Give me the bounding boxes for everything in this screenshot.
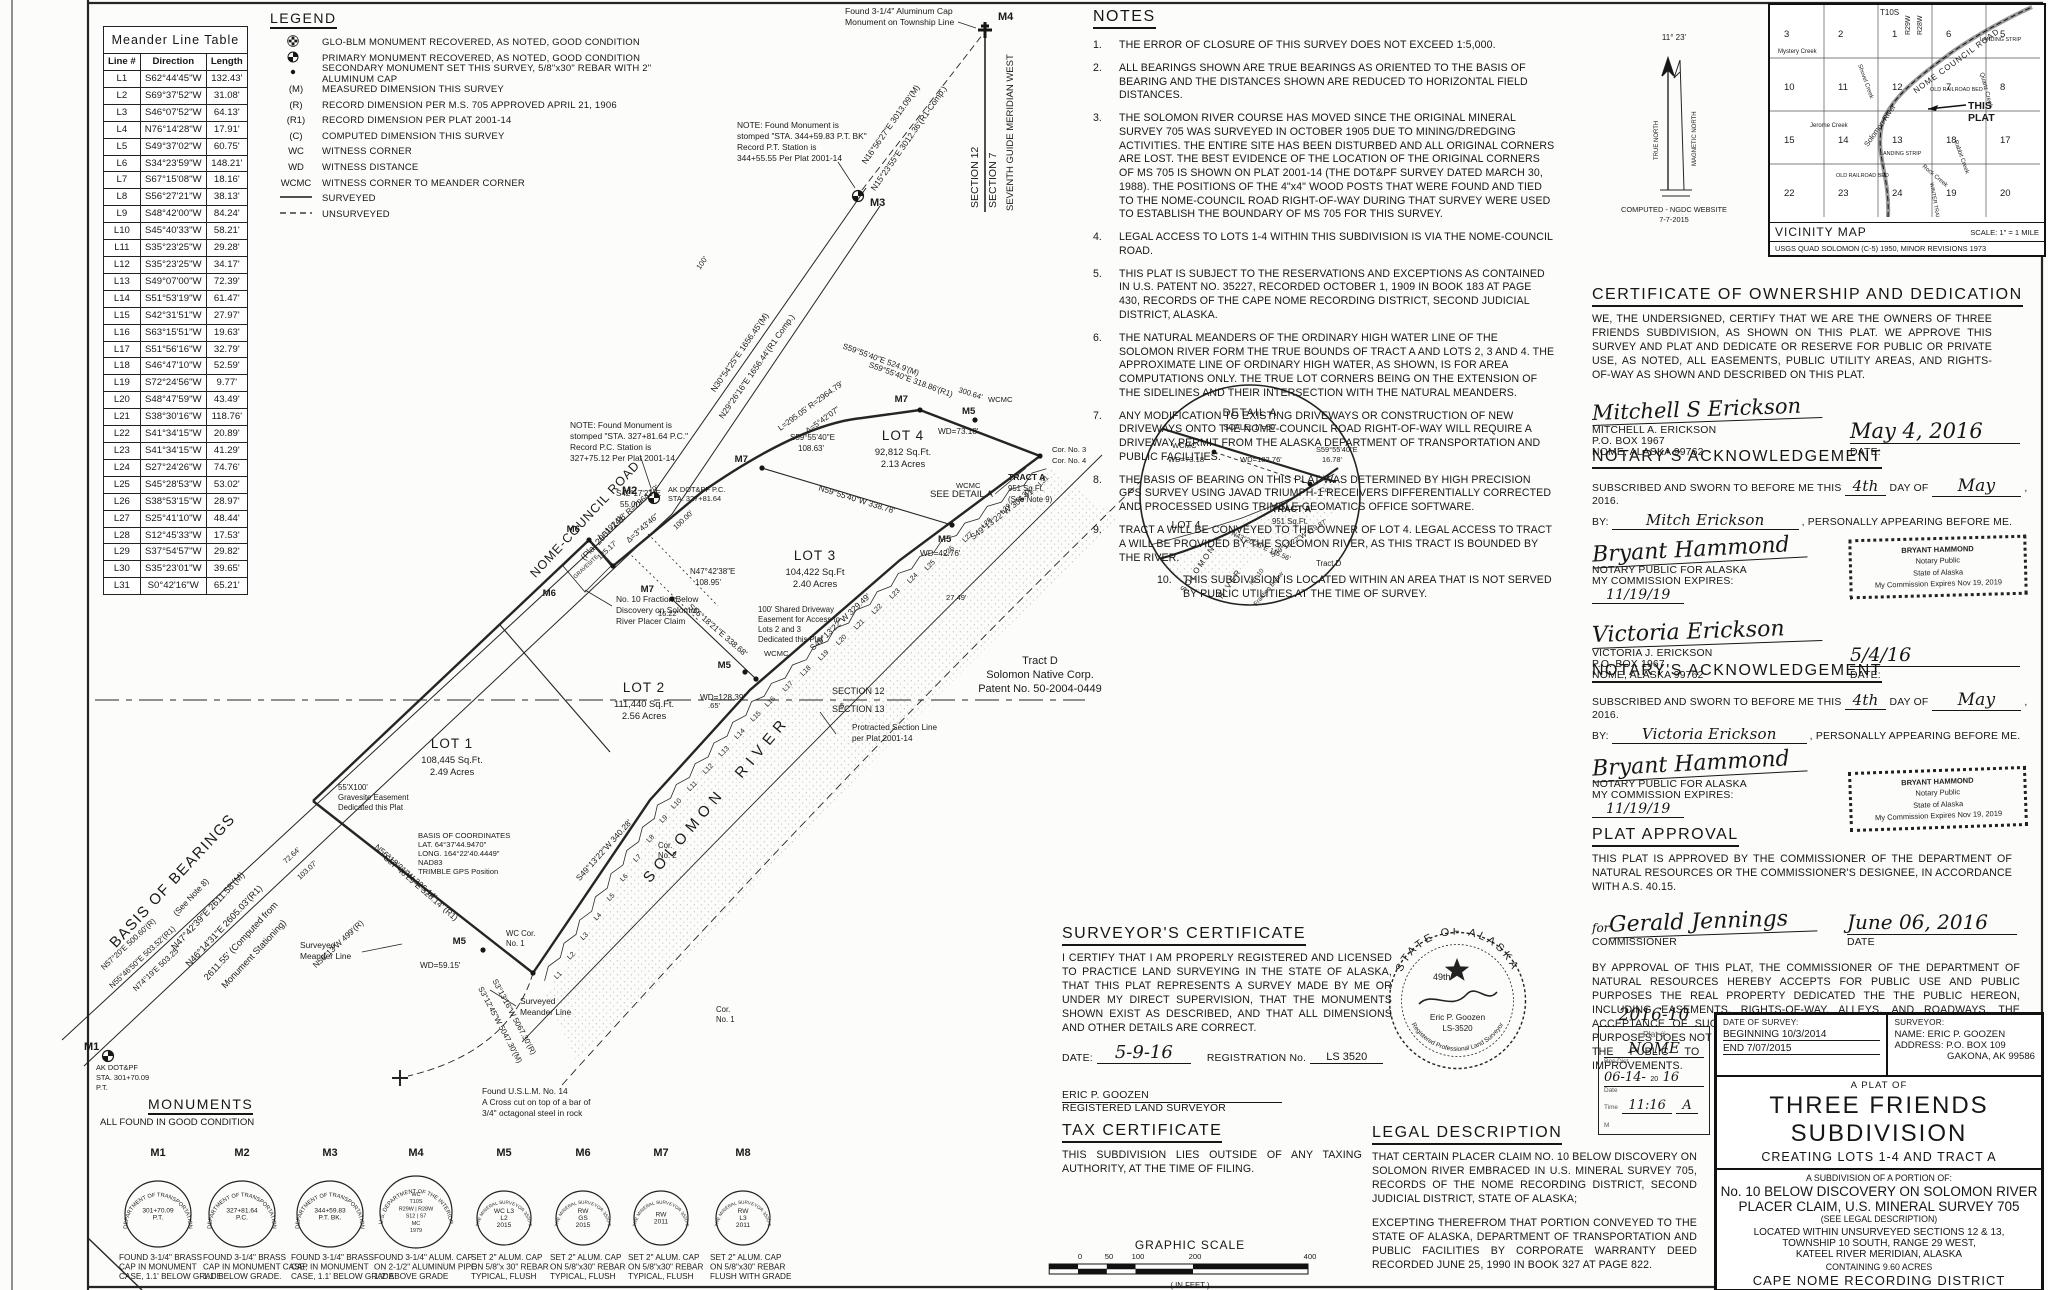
solid-line-icon bbox=[270, 191, 322, 206]
svg-text:Dedicated this Plat: Dedicated this Plat bbox=[338, 803, 404, 812]
monument-cap-text: L2 bbox=[500, 1215, 508, 1222]
lot1-label: LOT 1 bbox=[431, 736, 473, 751]
recording-stamp: 2016-10 Plat # NOME Rec Dist 06-14- 20 1… bbox=[1598, 1005, 1710, 1135]
legend-text: MEASURED DIMENSION THIS SURVEY bbox=[322, 84, 504, 95]
meander-table-row: L9S48°42'00"W84.24' bbox=[104, 206, 248, 223]
surveyor-seal: STATE OF ALASKA Registered Professional … bbox=[1385, 928, 1530, 1073]
expires-value: 11/19/19 bbox=[1592, 587, 1684, 604]
monument-caption: TYPICAL, FLUSH bbox=[550, 1272, 616, 1281]
note-number: 8. bbox=[1093, 474, 1119, 515]
tb-title: THREE FRIENDS SUBDIVISION bbox=[1717, 1092, 2041, 1148]
svg-text:R28W: R28W bbox=[1917, 15, 1924, 35]
surveyor-cert-title: SURVEYOR'S CERTIFICATE bbox=[1062, 925, 1306, 946]
svg-text:104,422 Sq.Ft: 104,422 Sq.Ft bbox=[786, 566, 845, 577]
meander-table-row: L2S69°37'52"W31.08' bbox=[104, 87, 248, 104]
svg-text:LONG. 164°22'40.4449": LONG. 164°22'40.4449" bbox=[418, 849, 500, 858]
svg-text:M5: M5 bbox=[718, 660, 732, 671]
m3-label: M3 bbox=[870, 197, 885, 209]
monument-cap-text: T10S bbox=[410, 1199, 423, 1205]
meander-table-row: L26S38°53'15"W28.97' bbox=[104, 493, 248, 510]
monument-cap-text: 1979 bbox=[410, 1228, 422, 1234]
monument-caption: ON 5/8"x30" REBAR bbox=[550, 1263, 626, 1272]
svg-text:11° 23': 11° 23' bbox=[1662, 33, 1687, 42]
legend-key: WC bbox=[270, 146, 322, 157]
legend: LEGEND GLO-BLM MONUMENT RECOVERED, AS NO… bbox=[270, 10, 670, 222]
monument-caption: 1.1' BELOW GRADE. bbox=[203, 1272, 281, 1281]
svg-text:WINTER TRAIL: WINTER TRAIL bbox=[1928, 182, 1940, 217]
legend-item: (C)COMPUTED DIMENSION THIS SURVEY bbox=[270, 129, 670, 145]
svg-text:27.49': 27.49' bbox=[946, 593, 967, 602]
tb-plat-of: A PLAT OF bbox=[1717, 1080, 2041, 1091]
tract-d-label: Tract D bbox=[1022, 655, 1058, 667]
meander-table-row: L19S72°24'56"W9.77' bbox=[104, 375, 248, 392]
monument-cap-text: 301+70.09 bbox=[142, 1207, 174, 1214]
legend-key: (R1) bbox=[270, 115, 322, 126]
monument-id: M2 bbox=[234, 1147, 249, 1159]
owner1-date: May 4, 2016 bbox=[1850, 419, 2020, 444]
meander-table-row: L7S67°15'08"W18.16' bbox=[104, 172, 248, 189]
notary1-signature: Bryant Hammond bbox=[1591, 531, 1807, 568]
svg-text:STA. 301+70.09: STA. 301+70.09 bbox=[96, 1073, 149, 1082]
note-text: THE BASIS OF BEARING ON THIS PLAT WAS DE… bbox=[1119, 474, 1555, 515]
sworn-month-2: May bbox=[1932, 690, 2022, 711]
graphic-scale-title: GRAPHIC SCALE bbox=[1040, 1238, 1340, 1252]
note-text: THE ERROR OF CLOSURE OF THIS SURVEY DOES… bbox=[1119, 39, 1555, 53]
svg-text:Eric P. Goozen: Eric P. Goozen bbox=[1430, 1012, 1486, 1022]
note-number: 5. bbox=[1093, 268, 1119, 323]
legend-text: UNSURVEYED bbox=[322, 209, 390, 220]
svg-text:SECTION 12: SECTION 12 bbox=[832, 686, 885, 696]
owner1-name: MITCHELL A. ERICKSON bbox=[1592, 425, 1822, 436]
vicinity-section-number: 8 bbox=[2000, 82, 2005, 93]
notary1-title: NOTARY'S ACKNOWLEDGEMENT bbox=[1592, 448, 1882, 469]
note-number: 7. bbox=[1093, 410, 1119, 465]
monument-caption: FOUND 3-1/4" BRASS bbox=[291, 1253, 375, 1262]
svg-text:111,440 Sq.Ft.: 111,440 Sq.Ft. bbox=[614, 698, 674, 709]
monument-cap-text: P.T. BK. bbox=[319, 1215, 342, 1222]
appearing-text-2: , PERSONALLY APPEARING BEFORE ME. bbox=[1810, 731, 2021, 742]
scale-bar bbox=[1040, 1263, 1340, 1275]
note-item: 8.THE BASIS OF BEARING ON THIS PLAT WAS … bbox=[1093, 474, 1555, 515]
svg-text:No. 1: No. 1 bbox=[716, 1015, 735, 1024]
svg-text:COMPUTED - NGDC WEBSITE: COMPUTED - NGDC WEBSITE bbox=[1621, 205, 1727, 214]
tb-begin: BEGINNING 10/3/2014 bbox=[1723, 1029, 1880, 1041]
meander-table-row: L11S35°23'25"W29.28' bbox=[104, 240, 248, 257]
notary2-stamp: BRYANT HAMMONDNotary Public State of Ala… bbox=[1848, 766, 2028, 832]
approval-date: June 06, 2016 bbox=[1847, 910, 2017, 935]
tb-district: CAPE NOME RECORDING DISTRICT bbox=[1717, 1273, 2041, 1288]
monument-caption: CAP IN MONUMENT bbox=[291, 1263, 369, 1272]
scale-tick-label: 400 bbox=[1300, 1252, 1320, 1261]
svg-text:OLD RAILROAD BED: OLD RAILROAD BED bbox=[1930, 87, 1983, 93]
see-detail-a: SEE DETAIL A bbox=[930, 489, 994, 500]
monument-caption: CAP IN MONUMENT bbox=[119, 1263, 197, 1272]
scale-unit: ( IN FEET ) bbox=[1040, 1281, 1340, 1290]
meander-table-row: L12S35°23'25"W34.17' bbox=[104, 257, 248, 274]
monument-id: M5 bbox=[496, 1147, 511, 1159]
plat-label: Plat # bbox=[1604, 1029, 1704, 1039]
note-number: 3. bbox=[1093, 112, 1119, 222]
owner2-name: VICTORIA J. ERICKSON bbox=[1592, 648, 1822, 659]
scale-tick-label: 200 bbox=[1185, 1252, 1205, 1261]
legend-key: (C) bbox=[270, 131, 322, 142]
vicinity-section-number: 13 bbox=[1892, 135, 1903, 146]
svg-text:Protracted Section Line: Protracted Section Line bbox=[852, 723, 938, 732]
vicinity-section-number: 24 bbox=[1892, 188, 1903, 199]
meander-table-row: L29S37°54'57"W29.82' bbox=[104, 544, 248, 561]
svg-text:M6: M6 bbox=[543, 588, 556, 599]
tb-surveyor-name: NAME: ERIC P. GOOZEN bbox=[1894, 1029, 2035, 1040]
meander-table-row: L5S49°37'02"W60.75' bbox=[104, 138, 248, 155]
tb-claim1: No. 10 BELOW DISCOVERY ON SOLOMON RIVER bbox=[1717, 1184, 2041, 1199]
by-name-2: Victoria Erickson bbox=[1612, 725, 1807, 744]
vicinity-title: VICINITY MAP bbox=[1775, 225, 1867, 239]
legend-key: WCMC bbox=[270, 178, 322, 189]
svg-text:R29W: R29W bbox=[1905, 15, 1912, 35]
svg-text:TRIMBLE GPS Position: TRIMBLE GPS Position bbox=[418, 867, 498, 876]
svg-text:Solomon Native Corp.: Solomon Native Corp. bbox=[986, 669, 1094, 681]
scale-tick-label: 100 bbox=[1128, 1252, 1148, 1261]
expires-label-2: MY COMMISSION EXPIRES: bbox=[1592, 790, 1734, 801]
rec-district-label: Rec Dist bbox=[1604, 1058, 1704, 1065]
registration-label: REGISTRATION No. bbox=[1207, 1053, 1306, 1064]
meander-table-row: L30S35°23'01"W39.65' bbox=[104, 561, 248, 578]
svg-text:LANDING STRIP: LANDING STRIP bbox=[1880, 151, 1922, 157]
monument-m6: M6THE MINERAL SURVEYOR 3520-SRWGS2015SET… bbox=[550, 1147, 626, 1281]
found-m4-note: Found 3-1/4" Aluminum Cap bbox=[845, 6, 953, 16]
secondary-monument-icon bbox=[270, 66, 322, 81]
svg-text:Monument on Township Line: Monument on Township Line bbox=[845, 17, 954, 27]
legend-text: RECORD DIMENSION PER M.S. 705 APPROVED A… bbox=[322, 100, 617, 111]
note-item: 9.TRACT A WILL BE CONVEYED TO THE OWNER … bbox=[1093, 524, 1555, 565]
ownership-body: WE, THE UNDERSIGNED, CERTIFY THAT WE ARE… bbox=[1592, 313, 1992, 383]
notes: NOTES 1.THE ERROR OF CLOSURE OF THIS SUR… bbox=[1093, 8, 1555, 611]
svg-text:SECTION 7: SECTION 7 bbox=[987, 152, 999, 208]
legend-key: (M) bbox=[270, 84, 322, 95]
glo-blm-monument-icon bbox=[270, 35, 322, 50]
note-text: THE NATURAL MEANDERS OF THE ORDINARY HIG… bbox=[1119, 332, 1555, 401]
legend-item: GLO-BLM MONUMENT RECOVERED, AS NOTED, GO… bbox=[270, 35, 670, 51]
svg-text:Gravesite Easement: Gravesite Easement bbox=[338, 793, 409, 802]
owner1-signature: Mitchell S Erickson bbox=[1592, 393, 1823, 426]
meander-table-row: L16S63°15'51"W19.63' bbox=[104, 324, 248, 341]
svg-text:M7: M7 bbox=[735, 454, 748, 465]
svg-text:WD=73.18': WD=73.18' bbox=[938, 427, 979, 436]
svg-text:Cor. No. 3: Cor. No. 3 bbox=[1052, 445, 1086, 454]
m4-label: M4 bbox=[998, 11, 1014, 23]
monument-cap-text: P.T. bbox=[153, 1215, 164, 1222]
note-text: TRACT A WILL BE CONVEYED TO THE OWNER OF… bbox=[1119, 524, 1555, 565]
vicinity-section-number: 22 bbox=[1784, 188, 1795, 199]
svg-text:SECTION 12: SECTION 12 bbox=[969, 147, 981, 208]
svg-text:M5: M5 bbox=[453, 936, 467, 947]
note-text: THIS PLAT IS SUBJECT TO THE RESERVATIONS… bbox=[1119, 268, 1555, 323]
rec-ampm: A bbox=[1676, 1098, 1697, 1114]
sworn-month: May bbox=[1932, 476, 2022, 497]
appearing-text: , PERSONALLY APPEARING BEFORE ME. bbox=[1802, 517, 2013, 528]
svg-text:2.40 Acres: 2.40 Acres bbox=[793, 578, 838, 589]
note-text: ALL BEARINGS SHOWN ARE TRUE BEARINGS AS … bbox=[1119, 62, 1555, 103]
approval-date-label: DATE bbox=[1847, 937, 2017, 948]
svg-text:SEVENTH GUIDE MERIDIAN WEST: SEVENTH GUIDE MERIDIAN WEST bbox=[1005, 54, 1016, 211]
legend-item: SURVEYED bbox=[270, 191, 670, 207]
svg-text:108,445 Sq.Ft.: 108,445 Sq.Ft. bbox=[421, 754, 483, 765]
tb-end: END 7/07/2015 bbox=[1723, 1043, 1880, 1055]
legend-key: (R) bbox=[270, 100, 322, 111]
note-text: ANY MODIFICATION TO EXISTING DRIVEWAYS O… bbox=[1119, 410, 1555, 465]
meander-table-row: L10S45°40'33"W58.21' bbox=[104, 223, 248, 240]
surveyors-certificate: SURVEYOR'S CERTIFICATE I CERTIFY THAT I … bbox=[1062, 925, 1407, 1114]
plat-approval-body1: THIS PLAT IS APPROVED BY THE COMMISSIONE… bbox=[1592, 853, 2012, 895]
svg-text:T10S: T10S bbox=[1880, 8, 1899, 17]
meander-line-table: Meander Line Table Line #DirectionLength… bbox=[103, 26, 248, 595]
monument-m4: M4U.S. DEPARTMENT OF THE INTERIORWCT10SR… bbox=[374, 1147, 477, 1281]
by-label: BY: bbox=[1592, 517, 1609, 528]
svg-text:344+55.55 Per Plat 2001-14: 344+55.55 Per Plat 2001-14 bbox=[737, 153, 842, 163]
legal-description: LEGAL DESCRIPTION THAT CERTAIN PLACER CL… bbox=[1372, 1124, 1702, 1273]
monument-caption: ON 5/8"x30" REBAR bbox=[710, 1263, 786, 1272]
note-item: 3.THE SOLOMON RIVER COURSE HAS MOVED SIN… bbox=[1093, 112, 1555, 222]
svg-text:103.07': 103.07' bbox=[295, 858, 319, 881]
vicinity-section-number: 12 bbox=[1892, 82, 1903, 93]
monument-cap-text: L3 bbox=[739, 1215, 747, 1222]
for-note: for bbox=[1592, 921, 1609, 935]
monument-caption: ON 5/8"x 30" REBAR bbox=[471, 1263, 549, 1272]
graphic-scale: GRAPHIC SCALE 050100200400 ( IN FEET ) 1… bbox=[1040, 1238, 1340, 1290]
tb-containing: CONTAINING 9.60 ACRES bbox=[1717, 1262, 2041, 1272]
legal-title: LEGAL DESCRIPTION bbox=[1372, 1124, 1562, 1145]
monument-cap-text: P.C. bbox=[236, 1215, 248, 1222]
tb-subtitle: CREATING LOTS 1-4 AND TRACT A bbox=[1717, 1150, 2041, 1164]
vicinity-section-number: 19 bbox=[1946, 188, 1957, 199]
legend-text: SECONDARY MONUMENT SET THIS SURVEY, 5/8"… bbox=[322, 63, 670, 85]
owner1-addr1: P.O. BOX 1967 bbox=[1592, 436, 1822, 447]
monument-id: M3 bbox=[322, 1147, 337, 1159]
monument-caption: ON 2-1/2" ALUMINUM PIPE bbox=[374, 1263, 477, 1272]
monument-cap-text: RW bbox=[738, 1208, 750, 1215]
note-item: 4.LEGAL ACCESS TO LOTS 1-4 WITHIN THIS S… bbox=[1093, 231, 1555, 259]
rec-date-label: Date bbox=[1604, 1087, 1704, 1094]
expires-label: MY COMMISSION EXPIRES: bbox=[1592, 576, 1734, 587]
svg-text:WC Cor.: WC Cor. bbox=[506, 929, 535, 938]
svg-text:AK DOT&PF: AK DOT&PF bbox=[96, 1063, 138, 1072]
svg-text:300.64': 300.64' bbox=[957, 385, 984, 401]
svg-text:M7: M7 bbox=[641, 584, 654, 595]
svg-text:100': 100' bbox=[694, 254, 710, 271]
legend-text: SURVEYED bbox=[322, 193, 376, 204]
svg-text:WD=128.39': WD=128.39' bbox=[700, 693, 745, 702]
svg-text:BASIS OF COORDINATES: BASIS OF COORDINATES bbox=[418, 831, 510, 840]
svg-text:M7: M7 bbox=[895, 394, 908, 405]
svg-text:WCMC: WCMC bbox=[764, 649, 789, 658]
tb-claim2: PLACER CLAIM, U.S. MINERAL SURVEY 705 bbox=[1717, 1199, 2041, 1214]
monument-cap-text: S12 | S7 bbox=[406, 1214, 427, 1220]
notary2-signature: Bryant Hammond bbox=[1591, 745, 1807, 782]
svg-text:stomped "STA. 327+81.64 P.C.": stomped "STA. 327+81.64 P.C." bbox=[570, 431, 688, 441]
svg-text:NAD83: NAD83 bbox=[418, 858, 442, 867]
svg-text:per Plat 2001-14: per Plat 2001-14 bbox=[852, 734, 913, 743]
note-item: 1.THE ERROR OF CLOSURE OF THIS SURVEY DO… bbox=[1093, 39, 1555, 53]
meander-table-row: L20S48°47'59"W43.49' bbox=[104, 392, 248, 409]
surveyor-cert-body: I CERTIFY THAT I AM PROPERLY REGISTERED … bbox=[1062, 952, 1392, 1036]
monument-cap-text: 2015 bbox=[497, 1222, 512, 1229]
monument-id: M1 bbox=[150, 1147, 165, 1159]
monument-caption: SET 2" ALUM. CAP bbox=[628, 1253, 700, 1262]
legend-item: WCWITNESS CORNER bbox=[270, 144, 670, 160]
monument-cap-text: 2011 bbox=[654, 1219, 669, 1226]
tb-located2: TOWNSHIP 10 SOUTH, RANGE 29 WEST, bbox=[1717, 1238, 2041, 1249]
meander-table-row: L21S38°30'16"W118.76' bbox=[104, 409, 248, 426]
sworn-text-2: SUBSCRIBED AND SWORN TO BEFORE ME THIS bbox=[1592, 697, 1842, 708]
meander-table-row: L31S0°42'16"W65.21' bbox=[104, 578, 248, 595]
sworn-dayof-2: DAY OF bbox=[1890, 697, 1929, 708]
svg-text:Record P.T. Station is: Record P.T. Station is bbox=[737, 142, 816, 152]
tb-located1: LOCATED WITHIN UNSURVEYED SECTIONS 12 & … bbox=[1717, 1227, 2041, 1238]
notary2-title: NOTARY'S ACKNOWLEDGEMENT bbox=[1592, 662, 1882, 683]
legend-text: WITNESS CORNER bbox=[322, 146, 412, 157]
svg-text:Surveyed: Surveyed bbox=[520, 996, 556, 1006]
note-number: 4. bbox=[1093, 231, 1119, 259]
note-text: THE SOLOMON RIVER COURSE HAS MOVED SINCE… bbox=[1119, 112, 1555, 222]
svg-text:M6: M6 bbox=[567, 524, 580, 535]
monument-cap-text: 2015 bbox=[576, 1222, 591, 1229]
rec-date-year: 16 bbox=[1663, 1070, 1680, 1085]
svg-text:108.95': 108.95' bbox=[695, 578, 721, 587]
note-number: 2. bbox=[1093, 62, 1119, 103]
legal-body2: EXCEPTING THEREFROM THAT PORTION CONVEYE… bbox=[1372, 1217, 1697, 1273]
meander-col-header: Length bbox=[206, 54, 247, 71]
monument-id: M6 bbox=[575, 1147, 590, 1159]
svg-text:2.49 Acres: 2.49 Acres bbox=[430, 766, 475, 777]
legend-item: UNSURVEYED bbox=[270, 207, 670, 223]
svg-text:49th: 49th bbox=[1433, 972, 1451, 982]
svg-text:Record P.C. Station is: Record P.C. Station is bbox=[570, 442, 651, 452]
svg-text:2.13 Acres: 2.13 Acres bbox=[881, 458, 926, 469]
legend-text: RECORD DIMENSION PER PLAT 2001-14 bbox=[322, 115, 511, 126]
svg-text:Patent No. 50-2004-0449: Patent No. 50-2004-0449 bbox=[978, 683, 1102, 695]
sworn-day: 4th bbox=[1845, 477, 1887, 496]
svg-text:Rabbit Creek: Rabbit Creek bbox=[1952, 140, 1970, 176]
monument-cap-text: WC L3 bbox=[494, 1208, 514, 1215]
svg-text:LANDING STRIP: LANDING STRIP bbox=[1980, 37, 2022, 43]
meander-col-header: Direction bbox=[140, 54, 206, 71]
svg-text:WCMC: WCMC bbox=[956, 481, 981, 490]
lot3-label: LOT 3 bbox=[794, 548, 836, 563]
monument-m8: M8THE MINERAL SURVEYOR 3520-SRWL32011SET… bbox=[710, 1147, 792, 1281]
svg-text:Meander Line: Meander Line bbox=[520, 1007, 572, 1017]
monument-caption: FLUSH WITH GRADE bbox=[710, 1272, 792, 1281]
tb-surveyor-label: SURVEYOR: bbox=[1894, 1018, 2035, 1027]
note-item: 10.THIS SUBDIVISION IS LOCATED WITHIN AN… bbox=[1093, 574, 1555, 602]
ownership-title: CERTIFICATE OF OWNERSHIP AND DEDICATION bbox=[1592, 286, 2023, 307]
svg-text:N59°55'40"W 338.78': N59°55'40"W 338.78' bbox=[817, 483, 896, 516]
note-item: 6.THE NATURAL MEANDERS OF THE ORDINARY H… bbox=[1093, 332, 1555, 401]
svg-text:2.56 Acres: 2.56 Acres bbox=[622, 710, 667, 721]
legend-item: WDWITNESS DISTANCE bbox=[270, 160, 670, 176]
monuments-canvas: M1DEPARTMENT OF TRANSPORTATION301+70.09P… bbox=[100, 1128, 800, 1288]
vicinity-section-number: 1 bbox=[1892, 29, 1897, 40]
meander-table-row: L4N76°14'28"W17.91' bbox=[104, 121, 248, 138]
svg-text:P.T.: P.T. bbox=[96, 1083, 108, 1092]
legend-item: (R1)RECORD DIMENSION PER PLAT 2001-14 bbox=[270, 113, 670, 129]
meander-table-row: L28S12°45'33"W17.53' bbox=[104, 527, 248, 544]
vicinity-scale: SCALE: 1" = 1 MILE bbox=[1970, 228, 2039, 237]
note-number: 10. bbox=[1157, 574, 1183, 602]
meander-table-row: L27S25°41'10"W48.44' bbox=[104, 510, 248, 527]
legend-text: WITNESS DISTANCE bbox=[322, 162, 418, 173]
monument-caption: FOUND 3-1/4" BRASS bbox=[119, 1253, 203, 1262]
meander-col-header: Line # bbox=[104, 54, 141, 71]
svg-text:No. 2: No. 2 bbox=[658, 851, 677, 860]
vicinity-section-number: 2 bbox=[1838, 29, 1843, 40]
svg-text:100' Shared Driveway: 100' Shared Driveway bbox=[758, 605, 834, 614]
svg-text:Found U.S.L.M. No. 14: Found U.S.L.M. No. 14 bbox=[482, 1086, 568, 1096]
vicinity-source: USGS QUAD SOLOMON (C-5) 1950, MINOR REVI… bbox=[1770, 241, 2044, 255]
monument-caption: SET 2" ALUM. CAP bbox=[550, 1253, 622, 1262]
legend-title: LEGEND bbox=[270, 10, 337, 29]
meander-table-row: L23S41°34'15"W41.29' bbox=[104, 442, 248, 459]
lot4-label: LOT 4 bbox=[882, 428, 924, 443]
note-item: 7.ANY MODIFICATION TO EXISTING DRIVEWAYS… bbox=[1093, 410, 1555, 465]
svg-text:MAGNETIC NORTH: MAGNETIC NORTH bbox=[1692, 111, 1698, 166]
tax-cert-body: THIS SUBDIVISION LIES OUTSIDE OF ANY TAX… bbox=[1062, 1149, 1362, 1177]
expires-value-2: 11/19/19 bbox=[1592, 801, 1684, 818]
primary-monument-icon bbox=[270, 51, 322, 66]
sworn-text: SUBSCRIBED AND SWORN TO BEFORE ME THIS bbox=[1592, 483, 1842, 494]
vicinity-section-number: 11 bbox=[1838, 82, 1848, 93]
surveyor-date: 5-9-16 bbox=[1097, 1042, 1191, 1064]
tb-located3: KATEEL RIVER MERIDIAN, ALASKA bbox=[1717, 1249, 2041, 1260]
m1-label: M1 bbox=[84, 1041, 99, 1053]
plat-approval-title: PLAT APPROVAL bbox=[1592, 826, 1739, 847]
scale-tick-label: 50 bbox=[1099, 1252, 1119, 1261]
svg-text:55'X100': 55'X100' bbox=[338, 783, 368, 792]
sworn-dayof: DAY OF bbox=[1890, 483, 1929, 494]
monument-m7: M7THE MINERAL SURVEYOR 3520-SRW2011SET 2… bbox=[628, 1147, 704, 1281]
svg-text:Mystery Creek: Mystery Creek bbox=[1778, 49, 1818, 55]
tb-date-survey-label: DATE OF SURVEY: bbox=[1723, 1018, 1880, 1027]
notary1-stamp: BRYANT HAMMONDNotary Public State of Ala… bbox=[1848, 535, 2028, 600]
svg-text:WD=59.15': WD=59.15' bbox=[420, 961, 461, 970]
svg-text:Meander Line: Meander Line bbox=[300, 951, 352, 961]
owner2-signature: Victoria Erickson bbox=[1592, 615, 1823, 649]
monument-id: M4 bbox=[408, 1147, 424, 1159]
tb-see-legal: (SEE LEGAL DESCRIPTION) bbox=[1717, 1214, 2041, 1224]
note-text: THIS SUBDIVISION IS LOCATED WITHIN AN AR… bbox=[1183, 574, 1555, 602]
svg-text:STA. 327+81.64: STA. 327+81.64 bbox=[668, 494, 721, 503]
svg-text:Lots 2 and 3: Lots 2 and 3 bbox=[758, 625, 801, 634]
rec-district-value: NOME bbox=[1604, 1039, 1704, 1058]
monument-cap-text: 344+59.83 bbox=[314, 1207, 346, 1214]
note-item: 2.ALL BEARINGS SHOWN ARE TRUE BEARINGS A… bbox=[1093, 62, 1555, 103]
rec-m: M bbox=[1604, 1122, 1609, 1129]
tb-surveyor-addr: ADDRESS: P.O. BOX 109 bbox=[1894, 1040, 2035, 1051]
notary-acknowledgement-1: NOTARY'S ACKNOWLEDGEMENT SUBSCRIBED AND … bbox=[1592, 448, 2030, 681]
svg-text:M5: M5 bbox=[962, 406, 976, 417]
monument-m5: M5THE MINERAL SURVEYOR 3520-SWC L3L22015… bbox=[471, 1147, 549, 1281]
legend-item: SECONDARY MONUMENT SET THIS SURVEY, 5/8"… bbox=[270, 66, 670, 82]
svg-text:OLD RAILROAD BED: OLD RAILROAD BED bbox=[1836, 173, 1889, 179]
note-number: 6. bbox=[1093, 332, 1119, 401]
svg-text:NOTE: Found Monument is: NOTE: Found Monument is bbox=[737, 120, 839, 130]
legend-text: COMPUTED DIMENSION THIS SURVEY bbox=[322, 131, 504, 142]
legal-body1: THAT CERTAIN PLACER CLAIM NO. 10 BELOW D… bbox=[1372, 1151, 1697, 1207]
tb-surveyor-addr2: GAKONA, AK 99586 bbox=[1894, 1051, 2035, 1062]
registration-number: LS 3520 bbox=[1310, 1051, 1383, 1064]
surveyor-name-label: REGISTERED LAND SURVEYOR bbox=[1062, 1103, 1282, 1114]
vicinity-section-number: 3 bbox=[1784, 29, 1789, 40]
meander-table-row: L1S62°44'45"W132.43' bbox=[104, 71, 248, 88]
